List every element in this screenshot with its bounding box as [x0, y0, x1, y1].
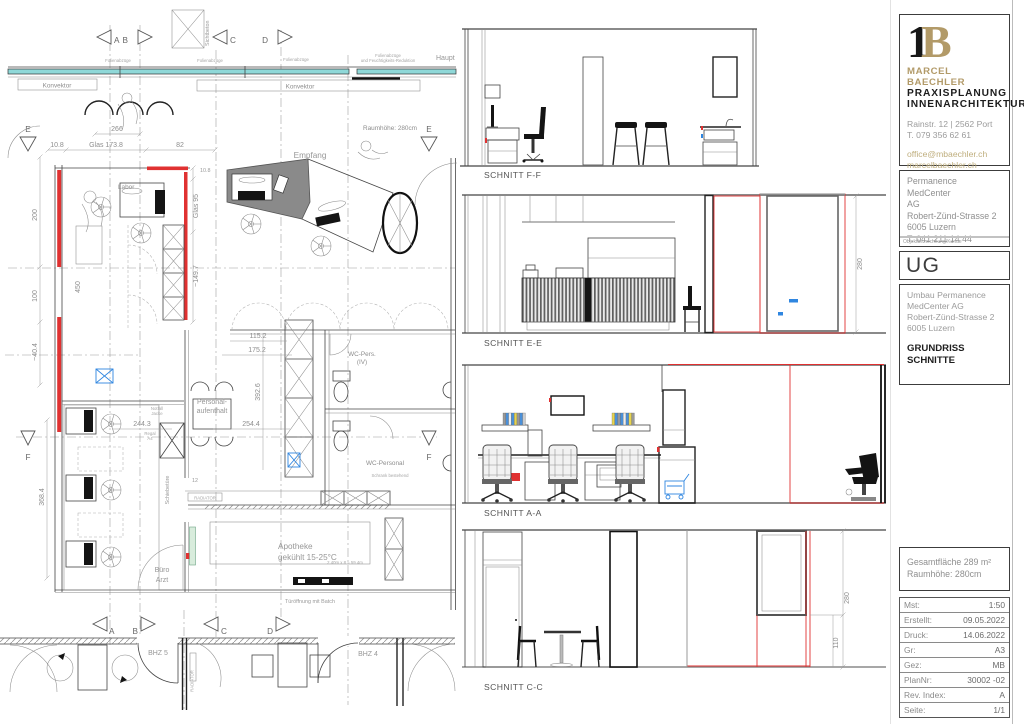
meta-label: PlanNr: — [904, 675, 932, 685]
labor-label: Labor — [118, 184, 135, 191]
project-line4: 6005 Luzern — [907, 323, 1002, 334]
ee-dim-280: 280 — [857, 258, 864, 270]
konvektor-left: Konvektor — [18, 79, 97, 90]
folien-label-4b: und Feuchtigkeits-Reduktion — [361, 58, 416, 63]
ee-glass-doors — [705, 194, 845, 333]
area-line1: Gesamtfläche 289 m² — [907, 556, 1002, 568]
ff-desk — [485, 85, 519, 163]
firm-address: Rainstr. 12 | 2562 Port — [907, 119, 1002, 129]
aa-shelves — [482, 413, 650, 431]
raumhoehe-label: Raumhöhe: 280cm — [363, 125, 417, 132]
folien-label-3: Folienabzüge — [283, 57, 309, 62]
firm-line2: PRAXISPLANUNG — [907, 88, 1002, 99]
cc-table-chairs — [518, 626, 599, 667]
schrank-bestehend-label: Schrank bestehend — [371, 473, 409, 478]
client-line1: Permanence MedCenter — [907, 176, 1002, 199]
dim-368-4: 368.4 — [39, 488, 46, 506]
client-caption: Objektbezeichnung/Kunde — [900, 236, 1009, 246]
firm-name: MARCEL BAECHLER — [907, 66, 1002, 88]
dim-115-2: 115.2 — [250, 333, 267, 340]
radiator-label-1: RADIATOR — [194, 496, 216, 501]
apotheke-label-1: Apotheke — [278, 542, 313, 551]
meta-value: 14.06.2022 — [963, 630, 1005, 640]
area-line2: Raumhöhe: 280cm — [907, 568, 1002, 580]
plan-sheet: Folienabzüge Folienabzüge Folienabzüge F… — [0, 0, 1024, 724]
marker-e-right: E — [421, 125, 437, 151]
meta-value: 1/1 — [993, 705, 1005, 715]
dim-100: 100 — [32, 290, 39, 302]
aa-task-chairs — [481, 445, 646, 503]
meta-row-gez: Gez:MB — [900, 658, 1009, 673]
meta-value: MB — [992, 660, 1005, 670]
client-line3: Robert-Zünd-Strasse 2 — [907, 211, 1002, 223]
dim-450: 450 — [75, 281, 82, 293]
dim-40-4: ~40.4 — [32, 343, 39, 361]
entrance-arches — [85, 93, 173, 130]
radiator-label-2: RADIATOR — [190, 670, 195, 692]
dim-254-4: 254.4 — [242, 421, 260, 428]
meta-row-gr: Gr:A3 — [900, 643, 1009, 658]
marker-c-bottom: C — [221, 627, 227, 636]
wc-pers-label: WC-Pers. — [348, 351, 376, 358]
dim-200: 200 — [32, 209, 39, 221]
wc-personal-label: WC-Personal — [366, 460, 404, 467]
marker-e-left: E — [8, 125, 40, 158]
floor-plan: Folienabzüge Folienabzüge Folienabzüge F… — [0, 10, 457, 710]
drawing-title-2: SCHNITTE — [907, 355, 1002, 367]
firm-web: marcelbaechler.ch — [907, 160, 1002, 170]
firm-logo: 1B — [907, 20, 1002, 64]
bhz4-label: BHZ 4 — [358, 651, 378, 658]
meta-value: 1:50 — [989, 600, 1005, 610]
ff-stools — [613, 122, 669, 165]
ff-office-chair — [523, 107, 547, 163]
marker-f-right: F — [422, 431, 436, 462]
dim-244-3: 244.3 — [133, 421, 151, 428]
personal-label-2: aufenthalt — [197, 408, 228, 415]
marker-c-top: C — [230, 36, 236, 45]
folien-label-2: Folienabzüge — [197, 58, 223, 63]
buero-label-1: Büro — [155, 567, 170, 574]
notfall-label-2: Jacke — [151, 411, 163, 416]
dim-266: 266 — [111, 126, 123, 133]
dim-10-8b: 10.8 — [200, 168, 211, 174]
window-band: Folienabzüge Folienabzüge Folienabzüge F… — [8, 53, 456, 79]
section-ff: SCHNITT F-F — [460, 29, 759, 180]
plan-code: UG — [906, 254, 1003, 278]
nr-12-label: 12 — [192, 478, 198, 484]
sichtbeton-label: Sichtbeton — [205, 21, 211, 46]
meta-value: A — [999, 690, 1005, 700]
aa-cabinet-cart — [657, 365, 695, 503]
meta-label: Seite: — [904, 705, 925, 715]
section-ee-label: SCHNITT E-E — [484, 338, 542, 348]
meta-label: Gr: — [904, 645, 916, 655]
titleblock-firm: 1B MARCEL BAECHLER PRAXISPLANUNG INNENAR… — [899, 14, 1010, 166]
section-ee: 280 SCHNITT E-E — [462, 194, 886, 349]
marker-f-left-label: F — [25, 453, 30, 462]
meta-label: Mst: — [904, 600, 920, 610]
sichtbeton-shaft: Sichtbeton — [172, 10, 211, 48]
drawing-title-1: GRUNDRISS — [907, 343, 1002, 355]
section-cc: 280 110 SCHNITT C-C — [462, 529, 886, 693]
wc-fixtures — [333, 371, 451, 471]
marker-d-top: D — [262, 36, 268, 45]
cc-window — [757, 531, 810, 667]
drawing-canvas: Folienabzüge Folienabzüge Folienabzüge F… — [0, 0, 1024, 724]
marker-e-left-label: E — [25, 125, 31, 134]
meta-label: Gez: — [904, 660, 922, 670]
project-line1: Umbau Permanence — [907, 290, 1002, 301]
regal-label-2: A4 — [147, 436, 153, 441]
cc-dimensions: 280 110 — [810, 529, 851, 670]
marker-b-top: B — [123, 36, 129, 45]
titleblock-meta-table: Mst:1:50 Erstellt:09.05.2022 Druck:14.06… — [899, 597, 1010, 718]
section-cc-label: SCHNITT C-C — [484, 682, 543, 692]
cc-dim-280: 280 — [844, 592, 851, 604]
section-aa: SCHNITT A-A — [462, 365, 886, 519]
ee-dimension: 280 — [854, 194, 865, 335]
meta-value: 30002 -02 — [967, 675, 1005, 685]
marker-e-right-label: E — [426, 125, 432, 134]
personal-label-1: Personal- — [197, 399, 228, 406]
section-markers-top: A B C D — [97, 30, 292, 45]
project-line2: MedCenter AG — [907, 301, 1002, 312]
marker-f-left: F — [21, 431, 35, 462]
section-markers-bottom: A B C D — [93, 617, 290, 636]
marker-b-bottom: B — [133, 627, 139, 636]
titleblock-plancode: UG — [899, 251, 1010, 280]
ff-sink-unit — [700, 57, 741, 165]
dim-glas-173: Glas 173.8 — [89, 142, 123, 149]
konvektor-label-right: Konvektor — [286, 84, 316, 91]
logo-b: B — [921, 16, 952, 67]
room-labels: Empfang Labor Personal- aufenthalt WC-Pe… — [118, 151, 409, 692]
bottom-band — [0, 636, 455, 710]
cc-tall-cabinet — [610, 532, 637, 668]
dim-82: 82 — [176, 142, 184, 149]
titleblock-project: Umbau Permanence MedCenter AG Robert-Zün… — [899, 284, 1010, 385]
meta-row-erstellt: Erstellt:09.05.2022 — [900, 613, 1009, 628]
meta-value: A3 — [995, 645, 1005, 655]
marker-f-right-label: F — [426, 453, 431, 462]
schiebetuere-label: Schiebetüre — [165, 476, 171, 505]
labor-furniture — [76, 183, 165, 330]
meta-row-seite: Seite:1/1 — [900, 703, 1009, 717]
cc-wardrobe — [483, 532, 522, 667]
marker-a-top: A — [114, 36, 120, 45]
meta-label: Erstellt: — [904, 615, 932, 625]
corridor-arcs — [232, 303, 448, 330]
marker-d-bottom: D — [267, 627, 273, 636]
konvektor-right: Konvektor — [197, 80, 420, 91]
apotheke-calc-label: 2.40m x 8 = 59.4m — [327, 560, 363, 565]
marker-a-bottom: A — [109, 627, 115, 636]
dim-149-7: ~149.7 — [193, 265, 200, 287]
client-line2: AG — [907, 199, 1002, 211]
client-line4: 6005 Luzern — [907, 222, 1002, 234]
firm-line3: INNENARCHITEKTUR — [907, 99, 1002, 110]
firm-email: office@mbaechler.ch — [907, 149, 1002, 159]
project-line3: Robert-Zünd-Strasse 2 — [907, 312, 1002, 323]
titleblock-area: Gesamtfläche 289 m² Raumhöhe: 280cm — [899, 547, 1010, 591]
bhz5-label: BHZ 5 — [148, 650, 168, 657]
konvektor-label-left: Konvektor — [43, 83, 73, 90]
meta-row-revindex: Rev. Index:A — [900, 688, 1009, 703]
ee-counter — [522, 195, 675, 330]
meta-label: Druck: — [904, 630, 928, 640]
section-aa-label: SCHNITT A-A — [484, 508, 542, 518]
meta-row-druck: Druck:14.06.2022 — [900, 628, 1009, 643]
empfang-label: Empfang — [294, 151, 327, 160]
ee-chair — [683, 286, 701, 332]
dim-392-6: 392.6 — [255, 383, 262, 401]
dim-glas-95: Glas 95 — [193, 194, 200, 218]
blue-shaft-symbols — [96, 369, 300, 467]
meta-label: Rev. Index: — [904, 690, 946, 700]
dim-10-8: 10.8 — [50, 142, 64, 149]
folien-label-1: Folienabzüge — [105, 58, 131, 63]
meta-value: 09.05.2022 — [963, 615, 1005, 625]
meta-row-mst: Mst:1:50 — [900, 598, 1009, 613]
firm-phone: T. 079 356 62 61 — [907, 130, 1002, 140]
section-ff-label: SCHNITT F-F — [484, 170, 541, 180]
haupteingang-label: Haupt — [436, 55, 455, 62]
aa-whiteboard — [551, 396, 584, 415]
cc-dim-110: 110 — [833, 637, 840, 648]
wc-iv-label: (IV) — [357, 359, 367, 366]
meta-row-plannr: PlanNr:30002 -02 — [900, 673, 1009, 688]
tueroeffnung-label: Türöffnung mit Batch — [285, 599, 335, 605]
buero-label-2: Arzt — [156, 577, 169, 584]
aa-treatment-chair — [845, 453, 879, 501]
titleblock-client: Permanence MedCenter AG Robert-Zünd-Stra… — [899, 170, 1010, 247]
